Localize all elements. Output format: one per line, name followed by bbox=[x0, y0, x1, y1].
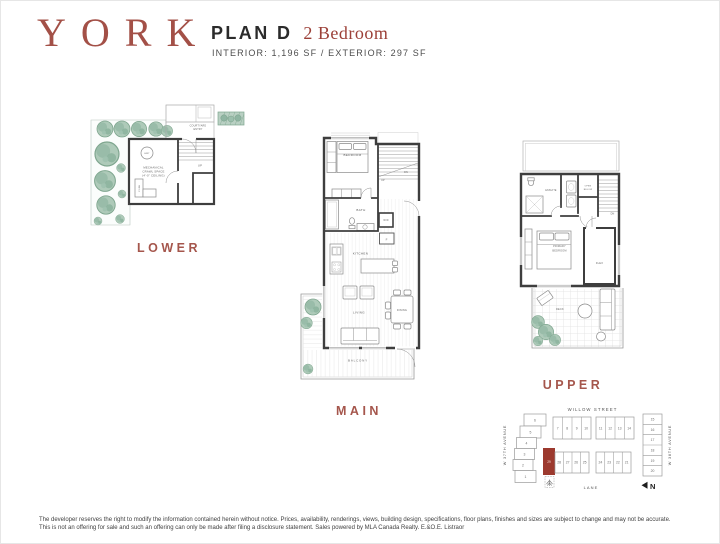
svg-text:14: 14 bbox=[627, 426, 631, 430]
ensuite-label: ENSUITE bbox=[545, 190, 557, 192]
open-below-label-2: BELOW bbox=[584, 189, 593, 191]
north-compass: N bbox=[642, 482, 656, 491]
bath-label: BATH bbox=[356, 208, 365, 212]
north-label: N bbox=[650, 482, 655, 491]
svg-text:18: 18 bbox=[651, 449, 655, 453]
brochure-page: YORK PLAN D 2 Bedroom INTERIOR: 1,196 SF… bbox=[0, 0, 720, 544]
svg-text:23: 23 bbox=[607, 461, 611, 465]
furn-label: FURN bbox=[139, 184, 141, 191]
lower-floorplan: HWT MECHANICAL CRAWL SPACE (4'-0" CEILIN… bbox=[79, 93, 284, 243]
vanity-icon bbox=[357, 224, 374, 231]
planter bbox=[218, 112, 244, 125]
svg-text:15: 15 bbox=[651, 418, 655, 422]
upper-label: UPPER bbox=[523, 378, 623, 392]
svg-text:4: 4 bbox=[526, 442, 528, 446]
svg-text:6: 6 bbox=[534, 418, 536, 422]
lane-label: LANE bbox=[584, 485, 599, 490]
lots-bottom-row: 29 28 27 26 25 24 23 22 21 bbox=[543, 448, 631, 475]
svg-text:9: 9 bbox=[576, 426, 578, 430]
svg-text:17: 17 bbox=[651, 438, 655, 442]
mechanical-label-3: (4'-0" CEILING) bbox=[142, 174, 164, 178]
w38th-avenue-label: W 38TH AVENUE bbox=[668, 425, 672, 466]
svg-text:27: 27 bbox=[566, 461, 570, 465]
dn-label: DN bbox=[611, 213, 615, 216]
bedroom-label: BEDROOM bbox=[344, 153, 362, 157]
svg-text:28: 28 bbox=[557, 461, 561, 465]
plan-type: 2 Bedroom bbox=[303, 23, 388, 44]
tree-icon bbox=[547, 480, 553, 487]
kitchen-label: KITCHEN bbox=[353, 252, 369, 256]
svg-text:8: 8 bbox=[566, 426, 568, 430]
disclaimer: The developer reserves the right to modi… bbox=[39, 517, 704, 532]
sink-icon bbox=[567, 181, 577, 193]
plan-name: PLAN D bbox=[211, 23, 292, 44]
svg-text:26: 26 bbox=[574, 461, 578, 465]
primary-bedroom-label-1: PRIMARY bbox=[553, 245, 566, 248]
plan-specs: INTERIOR: 1,196 SF / EXTERIOR: 297 SF bbox=[212, 48, 427, 58]
lots-right-column: 15 16 17 18 19 20 bbox=[643, 414, 662, 476]
lower-label: LOWER bbox=[119, 241, 219, 255]
upper-floorplan: DECK bbox=[514, 137, 649, 372]
svg-text:5: 5 bbox=[530, 430, 532, 434]
plan-title: PLAN D 2 Bedroom bbox=[211, 23, 388, 44]
disclaimer-line-1: The developer reserves the right to modi… bbox=[39, 517, 704, 525]
toilet-icon bbox=[349, 218, 354, 225]
svg-text:22: 22 bbox=[616, 461, 620, 465]
svg-text:25: 25 bbox=[583, 461, 587, 465]
svg-text:19: 19 bbox=[651, 459, 655, 463]
svg-text:24: 24 bbox=[599, 461, 603, 465]
lots-left-column: 6 5 4 3 2 1 bbox=[513, 414, 546, 483]
dining-label: DINING bbox=[397, 308, 407, 312]
w37th-avenue-label: W 37TH AVENUE bbox=[503, 425, 507, 466]
site-plan: WILLOW STREET LANE W 37TH AVENUE W 38TH … bbox=[484, 399, 694, 511]
svg-text:21: 21 bbox=[625, 461, 629, 465]
sink-icon bbox=[567, 195, 577, 207]
island-icon bbox=[361, 259, 394, 273]
courtyard-label-2: ENTRY bbox=[193, 128, 202, 131]
main-label: MAIN bbox=[309, 404, 409, 418]
open-below-label-1: OPEN bbox=[585, 186, 592, 188]
svg-text:10: 10 bbox=[584, 426, 588, 430]
deck-label: DECK bbox=[556, 307, 564, 311]
lot-tree-marker bbox=[545, 477, 554, 488]
lots-top-row: 7 8 9 10 11 12 13 14 bbox=[553, 417, 634, 439]
roof-parapet bbox=[523, 141, 619, 171]
svg-text:20: 20 bbox=[651, 469, 655, 473]
svg-text:12: 12 bbox=[608, 426, 612, 430]
deck-sofa-icon bbox=[600, 289, 615, 330]
york-logo: YORK bbox=[37, 13, 210, 53]
up-label: UP bbox=[381, 179, 385, 182]
svg-text:3: 3 bbox=[524, 453, 526, 457]
primary-bedroom-label-2: BEDROOM bbox=[552, 249, 566, 252]
deck: DECK bbox=[532, 288, 623, 348]
fridge-label: F bbox=[386, 238, 388, 242]
svg-text:11: 11 bbox=[599, 426, 603, 430]
svg-text:2: 2 bbox=[522, 464, 524, 468]
disclaimer-line-2: This is not an offering for sale and suc… bbox=[39, 525, 704, 533]
svg-text:13: 13 bbox=[618, 426, 622, 430]
svg-text:29: 29 bbox=[547, 460, 551, 464]
north-arrow-icon bbox=[642, 482, 648, 489]
svg-text:16: 16 bbox=[651, 428, 655, 432]
deck-table-icon bbox=[578, 304, 592, 318]
dn-label: DN bbox=[404, 171, 408, 174]
main-floorplan: BALCONY bbox=[294, 123, 434, 383]
balcony-label: BALCONY bbox=[348, 359, 368, 363]
living-label: LIVING bbox=[353, 311, 365, 315]
courtyard-structure bbox=[166, 105, 214, 139]
flex-label: FLEX bbox=[596, 261, 603, 265]
hwt-label: HWT bbox=[144, 153, 150, 155]
up-label: UP bbox=[198, 164, 202, 168]
svg-text:1: 1 bbox=[525, 475, 527, 479]
wd-label: W/D bbox=[383, 219, 388, 222]
willow-street-label: WILLOW STREET bbox=[568, 407, 618, 412]
sofa-icon bbox=[341, 328, 379, 344]
svg-text:7: 7 bbox=[557, 426, 559, 430]
